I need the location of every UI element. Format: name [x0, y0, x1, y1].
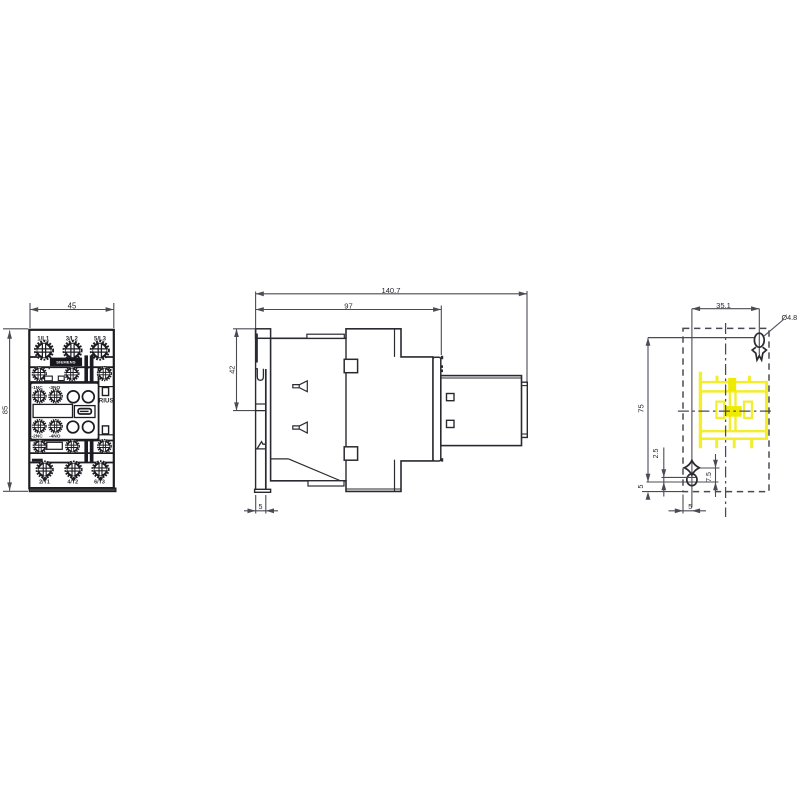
svg-text:5: 5	[259, 502, 263, 511]
svg-text:97: 97	[344, 302, 352, 311]
svg-text:7.5: 7.5	[706, 472, 713, 482]
svg-text:Ø4.8: Ø4.8	[782, 313, 798, 322]
svg-text:RIUS: RIUS	[99, 397, 114, 404]
svg-text:2/T1: 2/T1	[39, 480, 50, 486]
svg-text:5: 5	[638, 484, 645, 488]
svg-text:6/T3: 6/T3	[94, 480, 105, 486]
svg-text:75: 75	[637, 404, 646, 412]
svg-text:2.5: 2.5	[653, 449, 660, 459]
svg-text:140.7: 140.7	[381, 286, 400, 295]
svg-text:-2NC: -2NC	[32, 434, 44, 440]
svg-text:85: 85	[1, 406, 10, 414]
svg-text:-4NO: -4NO	[49, 434, 61, 440]
svg-text:4/T2: 4/T2	[67, 480, 78, 486]
svg-text:5: 5	[688, 504, 692, 511]
svg-text:45: 45	[68, 302, 77, 311]
svg-text:42: 42	[227, 366, 236, 374]
svg-text:35.1: 35.1	[716, 301, 731, 310]
svg-text:SIEMENS: SIEMENS	[56, 360, 76, 365]
